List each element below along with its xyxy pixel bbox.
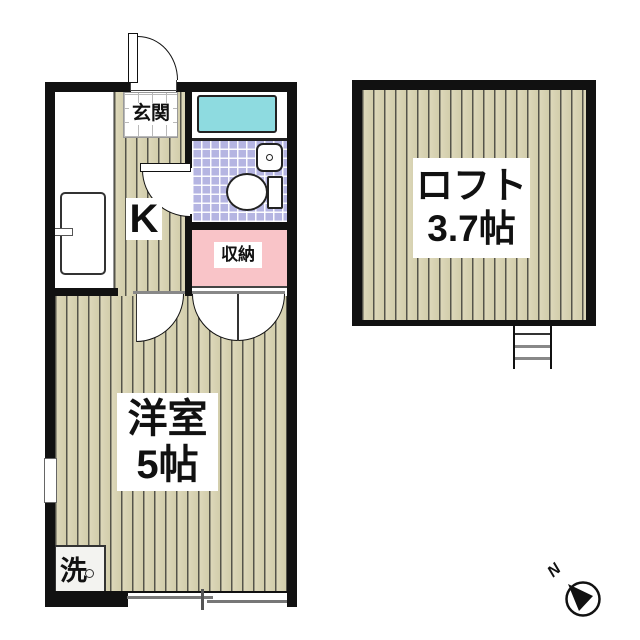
bottom-window-center-tick: [201, 589, 204, 610]
ladder: [513, 326, 552, 369]
washer-door-icon: [85, 569, 94, 578]
room-label-line1: 洋室: [128, 396, 208, 442]
unit-wall-right: [287, 82, 297, 607]
sink-drain-icon: [266, 154, 273, 161]
toilet-bowl: [226, 173, 268, 211]
loft-wall-right: [586, 80, 596, 326]
kitchen-label-text: K: [130, 196, 159, 242]
wall-bathroom-closet: [185, 222, 297, 230]
toilet-tank: [267, 176, 283, 209]
bathroom-door-leaf: [140, 163, 191, 172]
floor-plan: 玄関 収納 K 洋室 5帖 洗: [0, 0, 640, 640]
ladder-rung: [515, 345, 550, 348]
loft-wall-top: [352, 80, 596, 90]
ladder-rail-right: [550, 326, 552, 369]
room-label: 洋室 5帖: [117, 393, 218, 491]
entrance-door-swing: [138, 36, 178, 80]
counter-handle: [54, 228, 73, 236]
closet-label-text: 収納: [221, 245, 255, 265]
room-label-line2: 5帖: [136, 442, 198, 488]
loft-label-line2: 3.7帖: [427, 208, 515, 251]
wall-kitchen-room: [45, 288, 118, 296]
ladder-rung: [515, 333, 550, 335]
compass: N: [548, 560, 612, 624]
room-floor-bottom-line: [55, 591, 287, 593]
bottom-window-pane-right: [207, 600, 287, 603]
genkan-label: 玄関: [129, 103, 173, 125]
loft-label: ロフト 3.7帖: [413, 158, 530, 258]
kitchen-label: K: [126, 198, 162, 240]
closet-label: 収納: [214, 242, 262, 268]
loft-wall-bottom: [352, 320, 596, 326]
bathtub: [197, 95, 277, 133]
unit-wall-left: [45, 82, 55, 607]
ladder-rung: [515, 357, 550, 360]
left-window: [44, 458, 57, 503]
unit-wall-bottom-left: [45, 593, 128, 607]
loft-label-line1: ロフト: [416, 165, 527, 208]
entrance-door-leaf: [128, 33, 138, 83]
washer-label-text: 洗: [60, 556, 87, 586]
genkan-label-text: 玄関: [132, 103, 170, 125]
loft-wall-left: [352, 80, 362, 326]
